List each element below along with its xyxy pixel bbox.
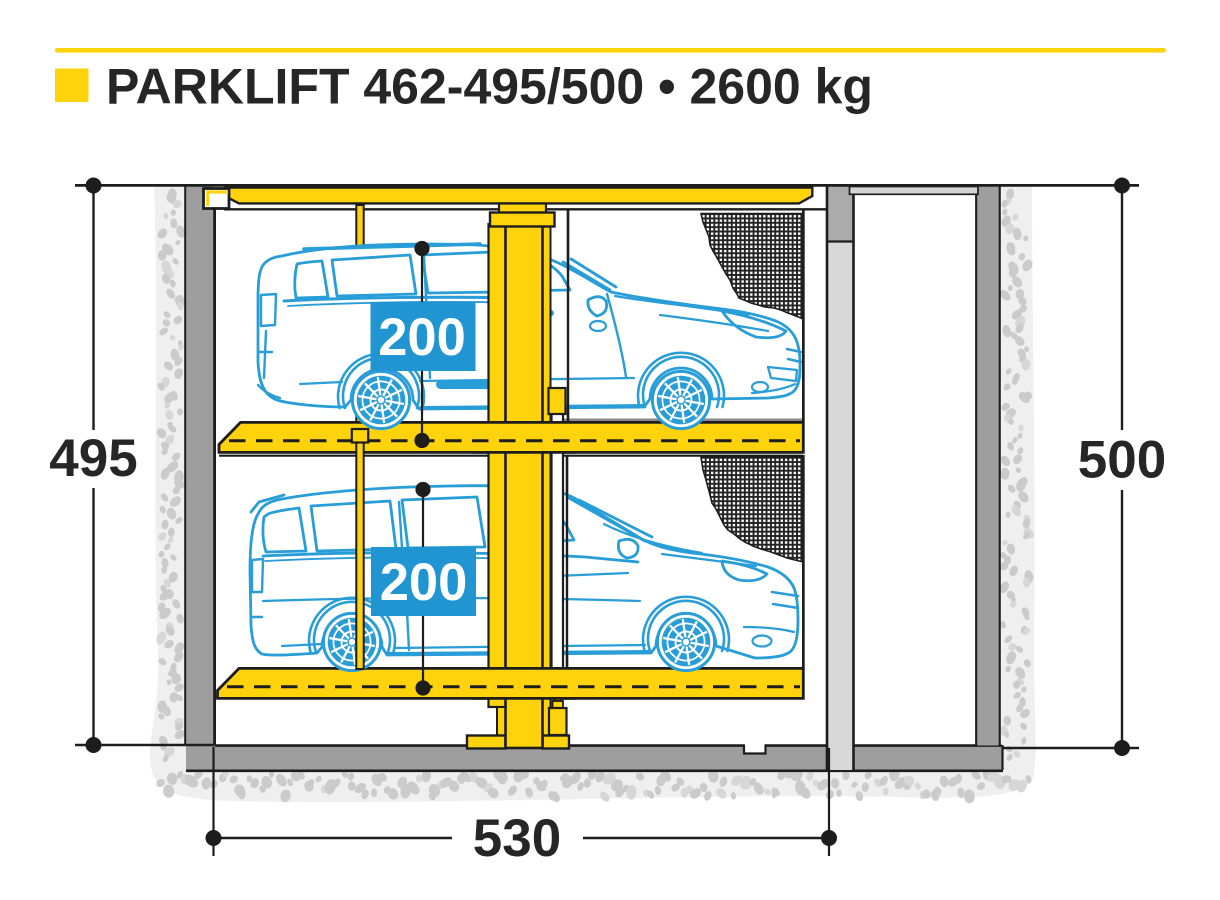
svg-text:500: 500: [1078, 431, 1166, 490]
svg-text:200: 200: [378, 308, 466, 367]
svg-text:530: 530: [473, 809, 561, 868]
svg-text:495: 495: [49, 429, 137, 488]
svg-text:200: 200: [380, 553, 468, 612]
svg-text:PARKLIFT 462-495/500 • 2600 kg: PARKLIFT 462-495/500 • 2600 kg: [106, 59, 873, 115]
